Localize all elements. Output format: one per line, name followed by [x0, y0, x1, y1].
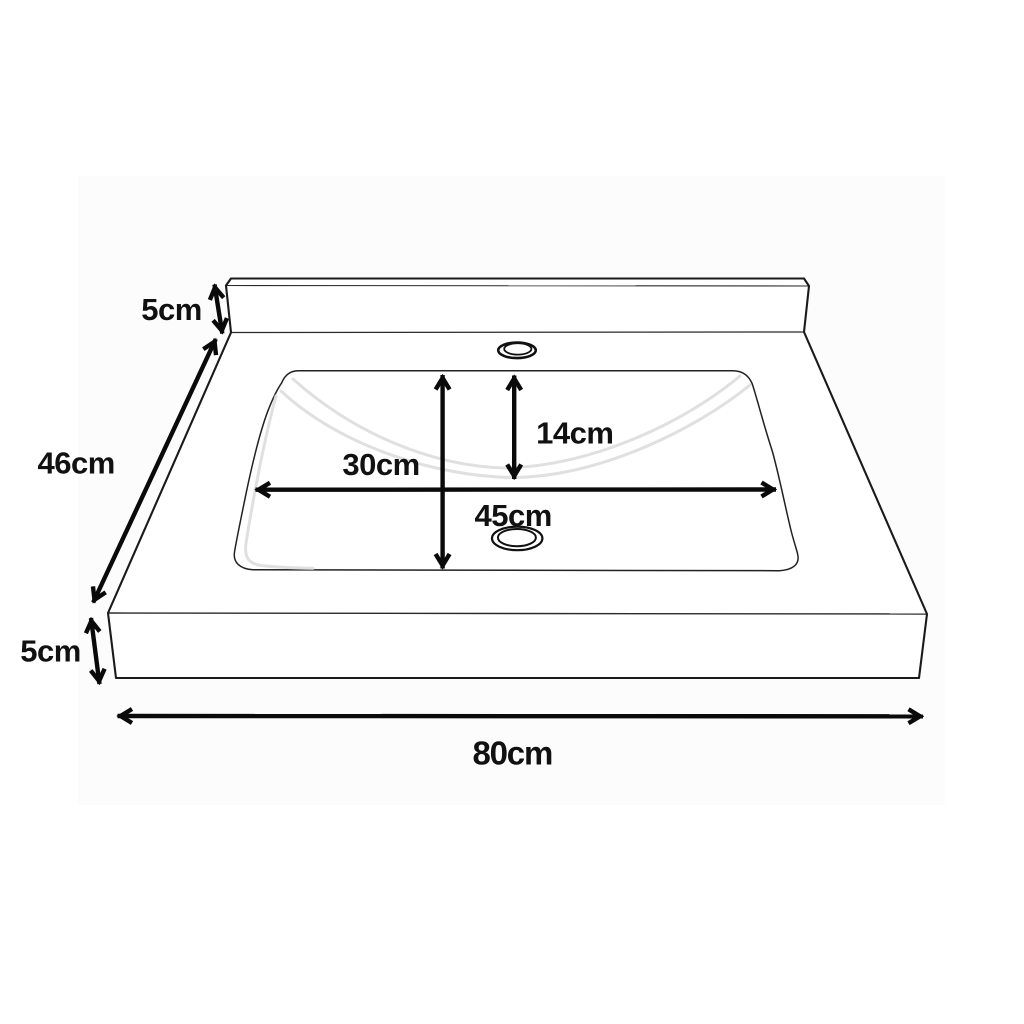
svg-text:45cm: 45cm	[475, 498, 552, 533]
svg-text:5cm: 5cm	[141, 292, 202, 327]
svg-text:46cm: 46cm	[38, 446, 115, 481]
svg-text:30cm: 30cm	[342, 447, 419, 482]
svg-text:14cm: 14cm	[536, 416, 613, 451]
svg-text:80cm: 80cm	[472, 735, 552, 772]
svg-text:5cm: 5cm	[20, 634, 81, 669]
